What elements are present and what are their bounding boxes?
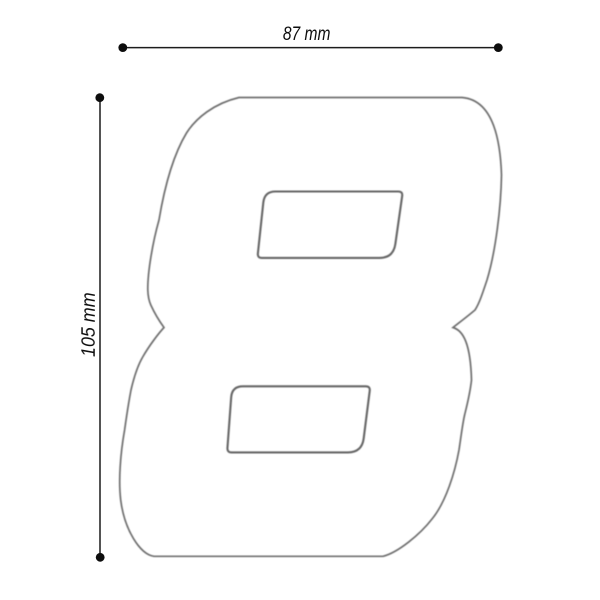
svg-text:105 mm: 105 mm	[79, 292, 100, 357]
svg-text:87 mm: 87 mm	[283, 24, 331, 45]
